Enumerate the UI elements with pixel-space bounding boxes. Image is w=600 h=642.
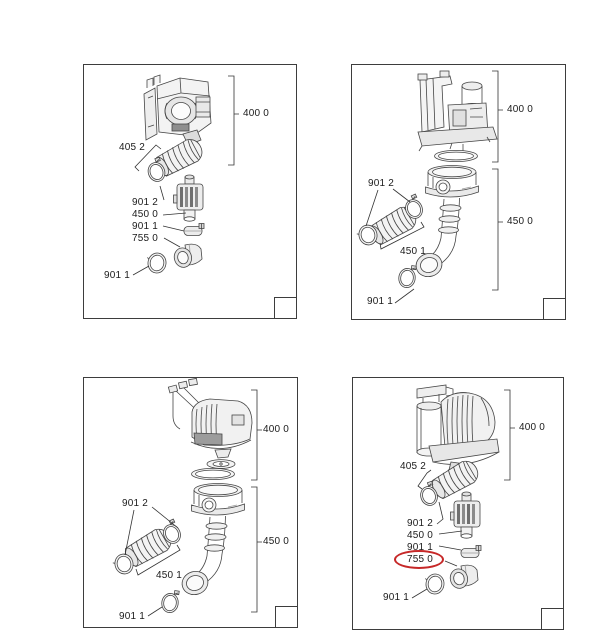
bracket-400	[251, 390, 262, 480]
part-label-901-1: 901 1	[124, 222, 158, 232]
part-label-450-1: 450 1	[400, 247, 426, 257]
corner-box	[274, 297, 297, 319]
parts-catalog-page: 400 0 405 2 901 2 450 0 901 1 755 0 901 …	[0, 0, 600, 642]
parts-panel-4: 400 0 405 2 901 2 450 0 901 1 755 0 901 …	[352, 377, 564, 630]
part-label-901-1: 901 1	[367, 297, 393, 307]
part-label-400-0: 400 0	[507, 105, 533, 115]
intake-pipe-assembly	[179, 484, 244, 598]
part-label-405-2: 405 2	[400, 462, 426, 472]
air-cleaner-assembly	[144, 75, 211, 145]
exploded-drawing-2	[352, 65, 565, 319]
part-label-450-0: 450 0	[263, 537, 289, 547]
corner-box	[541, 608, 564, 630]
part-label-400-0: 400 0	[263, 425, 289, 435]
hose-ring	[423, 573, 445, 596]
hose-ring	[145, 252, 167, 275]
part-label-901-1-bottom: 901 1	[104, 271, 130, 281]
hose-clamp-bottom	[398, 264, 417, 289]
bracket-400	[504, 390, 515, 480]
bracket-450	[251, 487, 262, 612]
parts-panel-3: 400 0 450 0 901 2 450 1 901 1	[83, 377, 298, 628]
pump-assembly	[417, 385, 499, 473]
part-label-755-0-circled: 755 0	[399, 555, 433, 565]
parts-panel-1: 400 0 405 2 901 2 450 0 901 1 755 0 901 …	[83, 64, 297, 319]
part-label-400-0: 400 0	[519, 423, 545, 433]
intake-pipe-assembly	[413, 166, 478, 280]
part-label-450-0: 450 0	[399, 531, 433, 541]
air-cleaner-assembly	[168, 378, 252, 458]
bracket-400	[228, 76, 239, 165]
part-label-901-2: 901 2	[124, 198, 158, 208]
part-label-755-0: 755 0	[124, 234, 158, 244]
part-label-901-2: 901 2	[368, 179, 394, 189]
gasket	[192, 468, 235, 479]
part-label-400-0: 400 0	[243, 109, 269, 119]
part-label-450-0: 450 0	[507, 217, 533, 227]
elbow-pipe	[172, 244, 202, 269]
small-clamp	[184, 224, 204, 236]
corner-box	[543, 298, 566, 320]
part-label-901-2: 901 2	[122, 499, 148, 509]
part-label-901-1-bottom: 901 1	[383, 593, 409, 603]
bracket-400	[492, 71, 503, 162]
resonator-valve	[451, 492, 481, 538]
exploded-drawing-3	[84, 378, 297, 627]
mounting-bracket-assembly	[418, 71, 497, 159]
part-label-450-0: 450 0	[124, 210, 158, 220]
hose-clamp-bottom	[161, 589, 180, 614]
parts-panel-2: 400 0 450 0 901 2 450 1 901 1	[351, 64, 566, 320]
corner-box	[275, 606, 298, 628]
elbow-pipe	[448, 565, 478, 590]
small-clamp	[461, 546, 481, 558]
part-label-901-1: 901 1	[119, 612, 145, 622]
gasket	[435, 150, 478, 161]
bracket-450	[492, 169, 503, 290]
part-label-450-1: 450 1	[156, 571, 182, 581]
part-label-901-2: 901 2	[399, 519, 433, 529]
resonator-valve	[174, 175, 204, 221]
part-label-405-2: 405 2	[119, 143, 145, 153]
cover-plate	[207, 460, 235, 469]
